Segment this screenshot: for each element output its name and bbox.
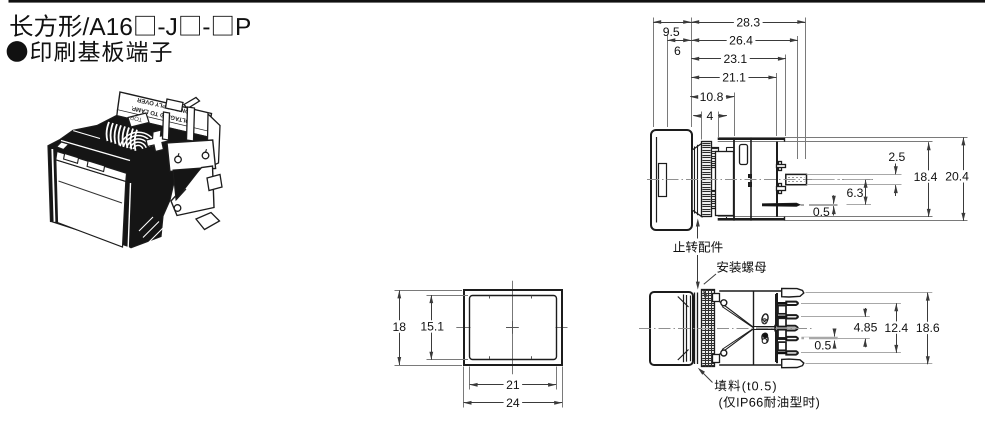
svg-text:4: 4 [707,109,714,123]
svg-text:9.5: 9.5 [663,25,680,39]
svg-text:21.1: 21.1 [722,71,746,85]
svg-text:28.3: 28.3 [736,15,760,29]
svg-text:6.3: 6.3 [847,186,864,200]
svg-text:23.1: 23.1 [723,52,747,66]
svg-text:18: 18 [393,320,407,334]
svg-text:26.4: 26.4 [729,34,753,48]
svg-text:6: 6 [674,44,681,58]
svg-text:15.1: 15.1 [420,320,444,334]
svg-text:12.4: 12.4 [884,321,908,335]
svg-text:10.8: 10.8 [700,90,724,104]
svg-text:0.5: 0.5 [813,205,830,219]
svg-text:18.6: 18.6 [916,321,940,335]
svg-text:18.4: 18.4 [914,170,938,184]
svg-text:0.5: 0.5 [814,338,831,352]
svg-text:2.5: 2.5 [888,150,905,164]
svg-text:21: 21 [506,378,520,392]
svg-text:24: 24 [506,396,520,410]
svg-text:4.85: 4.85 [854,321,878,335]
svg-text:20.4: 20.4 [945,170,969,184]
